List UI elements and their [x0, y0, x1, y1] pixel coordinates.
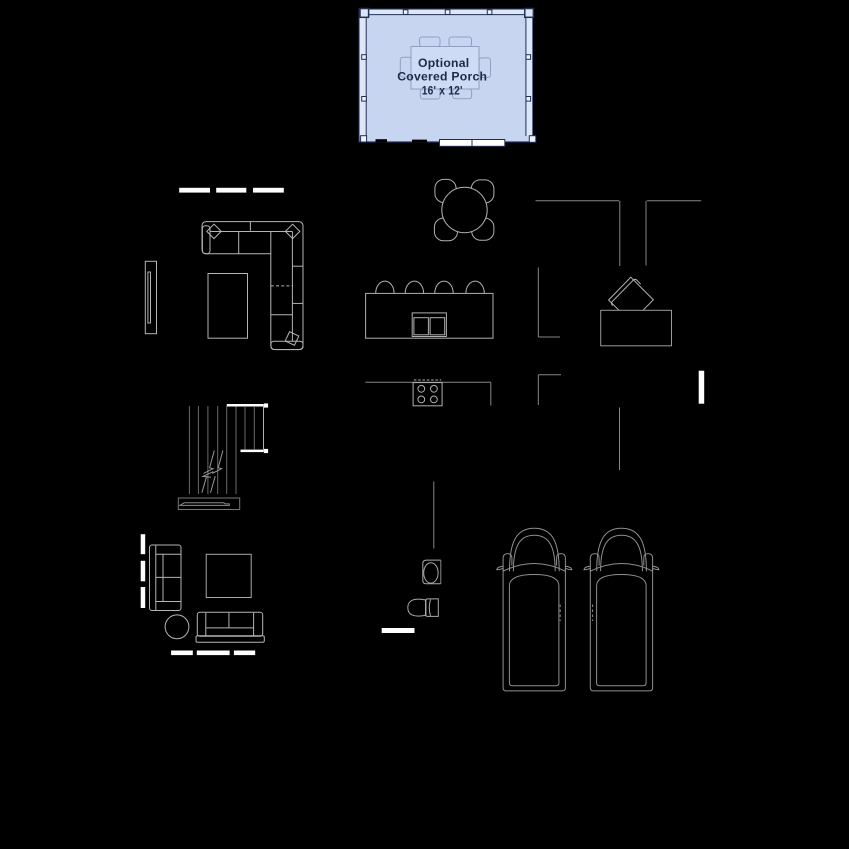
- svg-text:Covered Porch: Covered Porch: [397, 69, 487, 83]
- svg-text:Optional: Optional: [418, 56, 469, 70]
- svg-text:16' x 12': 16' x 12': [422, 84, 463, 98]
